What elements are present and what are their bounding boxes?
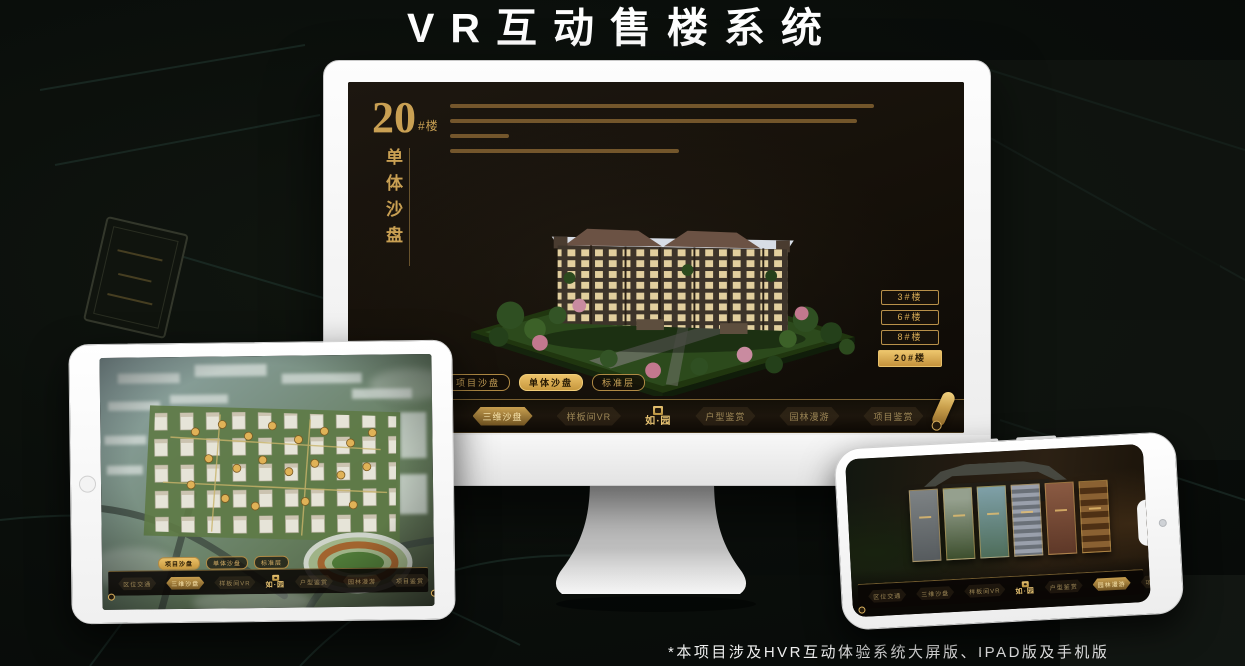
seal-logo-icon <box>653 406 663 415</box>
tablet-subtabs: 项目沙盘 单体沙盘 标准层 <box>158 556 289 571</box>
scroll-menu-icon[interactable] <box>107 573 116 595</box>
tablet-bottom-nav: 区位交通 三维沙盘 样板间VR 如·园 户型鉴赏 园林漫游 项目鉴赏 <box>108 567 428 596</box>
tablet-screen: 项目沙盘 单体沙盘 标准层 区位交通 三维沙盘 样板间VR 如·园 户型鉴赏 园… <box>99 354 434 610</box>
nav-item-garden-roam[interactable]: 园林漫游 <box>1092 576 1131 591</box>
subtab-single-sandbox[interactable]: 单体沙盘 <box>519 374 583 391</box>
building-hero-block: 20 #楼 单体沙盘 <box>372 96 439 266</box>
phone-screen: 区位交通 三维沙盘 样板间VR 如·园 户型鉴赏 园林漫游 项目鉴赏 <box>845 444 1151 617</box>
nav-item-showroom-vr[interactable]: 样板间VR <box>557 407 622 426</box>
monitor-stand <box>546 480 766 614</box>
tablet-subtab-single-sandbox[interactable]: 单体沙盘 <box>206 556 248 570</box>
hero-title-vertical: 单体沙盘 <box>380 148 410 266</box>
nav-item-location-traffic[interactable]: 区位交通 <box>118 577 156 590</box>
subtab-standard-floor[interactable]: 标准层 <box>592 374 645 391</box>
page-title: VR互动售楼系统 <box>0 0 1245 56</box>
nav-item-3d-sandbox[interactable]: 三维沙盘 <box>916 585 955 600</box>
scroll-menu-icon[interactable] <box>858 586 867 608</box>
nav-item-3d-sandbox[interactable]: 三维沙盘 <box>473 407 533 426</box>
building-button-6[interactable]: 6#楼 <box>881 310 939 325</box>
scene-card[interactable] <box>909 489 942 562</box>
scene-card[interactable] <box>1078 480 1111 553</box>
tablet-subtab-standard-floor[interactable]: 标准层 <box>254 556 289 569</box>
poster-canvas: VR互动售楼系统 20 #楼 单体沙盘 <box>0 0 1245 666</box>
building-button-20[interactable]: 20#楼 <box>878 350 942 367</box>
home-button[interactable] <box>79 476 96 493</box>
building-3d-model[interactable] <box>433 150 883 396</box>
building-button-8[interactable]: 8#楼 <box>881 330 939 345</box>
nav-item-floorplan[interactable]: 户型鉴赏 <box>295 575 333 588</box>
nav-item-project-view[interactable]: 项目鉴赏 <box>863 407 923 426</box>
scene-card[interactable] <box>977 485 1010 558</box>
subtab-project-sandbox[interactable]: 项目沙盘 <box>446 374 510 391</box>
seal-logo-icon <box>1021 581 1028 587</box>
nav-item-garden-roam[interactable]: 园林漫游 <box>343 574 381 587</box>
scene-card[interactable] <box>1011 483 1044 556</box>
nav-item-project-view[interactable]: 项目鉴赏 <box>1140 574 1151 589</box>
footnote-text: *本项目涉及HVR互动体验系统大屏版、IPAD版及手机版 <box>668 641 1109 662</box>
scene-card[interactable] <box>943 487 976 560</box>
nav-item-showroom-vr[interactable]: 样板间VR <box>964 583 1006 598</box>
nav-item-floorplan[interactable]: 户型鉴赏 <box>695 407 755 426</box>
nav-item-location-traffic[interactable]: 区位交通 <box>868 588 907 603</box>
hero-building-suffix: #楼 <box>418 117 439 140</box>
scene-card-gallery <box>909 480 1111 562</box>
tablet-device: 项目沙盘 单体沙盘 标准层 区位交通 三维沙盘 样板间VR 如·园 户型鉴赏 园… <box>68 340 455 625</box>
nav-item-showroom-vr[interactable]: 样板间VR <box>214 576 255 590</box>
scene-card[interactable] <box>1045 482 1078 555</box>
power-button[interactable] <box>1016 435 1056 440</box>
nav-item-garden-roam[interactable]: 园林漫游 <box>779 407 839 426</box>
phone-device: 区位交通 三维沙盘 样板间VR 如·园 户型鉴赏 园林漫游 项目鉴赏 <box>833 431 1184 631</box>
ruyuan-logo: 如·园 <box>645 406 671 427</box>
seal-logo-icon <box>272 575 279 581</box>
tablet-subtab-project-sandbox[interactable]: 项目沙盘 <box>158 557 200 571</box>
nav-item-project-view[interactable]: 项目鉴赏 <box>391 573 429 586</box>
front-camera-icon <box>1159 519 1167 527</box>
nav-item-3d-sandbox[interactable]: 三维沙盘 <box>166 576 204 589</box>
building-button-3[interactable]: 3#楼 <box>881 290 939 305</box>
volume-button[interactable] <box>972 438 998 442</box>
building-selector: 3#楼 6#楼 8#楼 20#楼 <box>878 290 942 367</box>
sandbox-subtabs: 项目沙盘 单体沙盘 标准层 <box>446 374 645 391</box>
phone-notch <box>1137 500 1148 546</box>
ruyuan-logo: 如·园 <box>1015 581 1035 596</box>
nav-item-floorplan[interactable]: 户型鉴赏 <box>1044 579 1083 594</box>
ruyuan-logo: 如·园 <box>266 575 286 589</box>
hero-building-number: 20 <box>372 96 416 140</box>
